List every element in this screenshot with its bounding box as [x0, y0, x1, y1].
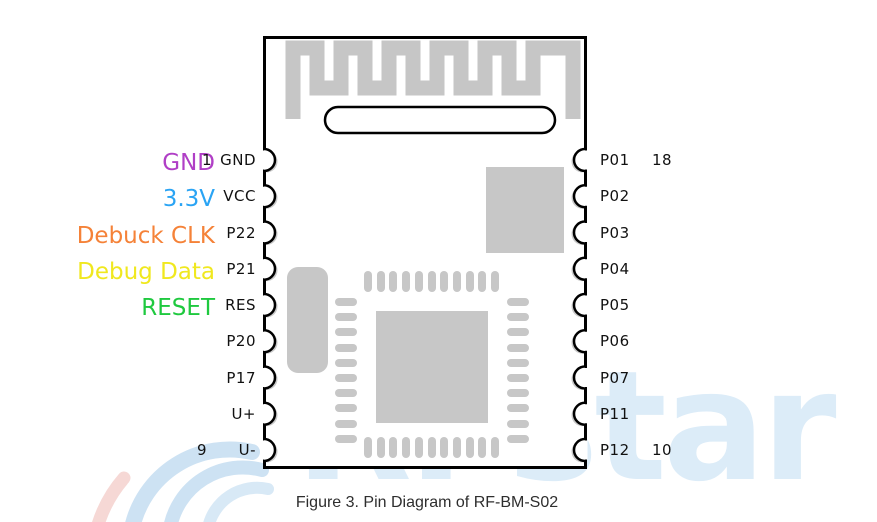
ic-center-pad [376, 311, 488, 423]
component-crystal [486, 167, 564, 253]
pin-label-p12: P12 [600, 441, 630, 459]
pin-label-p04: P04 [600, 260, 630, 278]
pin-label-uplus: U+ [0, 405, 256, 423]
pin-label-p17: P17 [0, 369, 256, 387]
pin-label-p02: P02 [600, 187, 630, 205]
pin-label-p20: P20 [0, 332, 256, 350]
pin-number-9: 9 [0, 441, 207, 459]
pin-label-p06: P06 [600, 332, 630, 350]
pin-label-p07: P07 [600, 369, 630, 387]
figure-caption: Figure 3. Pin Diagram of RF-BM-S02 [0, 494, 854, 512]
pin-number-10: 10 [652, 441, 672, 459]
antenna-slot [325, 107, 555, 133]
pin-label-p11: P11 [600, 405, 630, 423]
pin-label-p22: P22 [0, 224, 256, 242]
left-pin-notches [264, 149, 275, 461]
pin-label-p01: P01 [600, 151, 630, 169]
pin-label-p21: P21 [0, 260, 256, 278]
pin-label-res: RES [0, 296, 256, 314]
ic-pads-bottom [364, 437, 499, 458]
pin-label-vcc: VCC [0, 187, 256, 205]
pin-label-p05: P05 [600, 296, 630, 314]
pin-number-18: 18 [652, 151, 672, 169]
ic-pads-top [364, 271, 499, 292]
component-capacitor [287, 267, 328, 373]
pin-diagram-figure: RFstar [0, 0, 877, 522]
right-pin-notches [574, 149, 585, 461]
pin-number-1: 1 [0, 151, 212, 169]
pin-label-p03: P03 [600, 224, 630, 242]
